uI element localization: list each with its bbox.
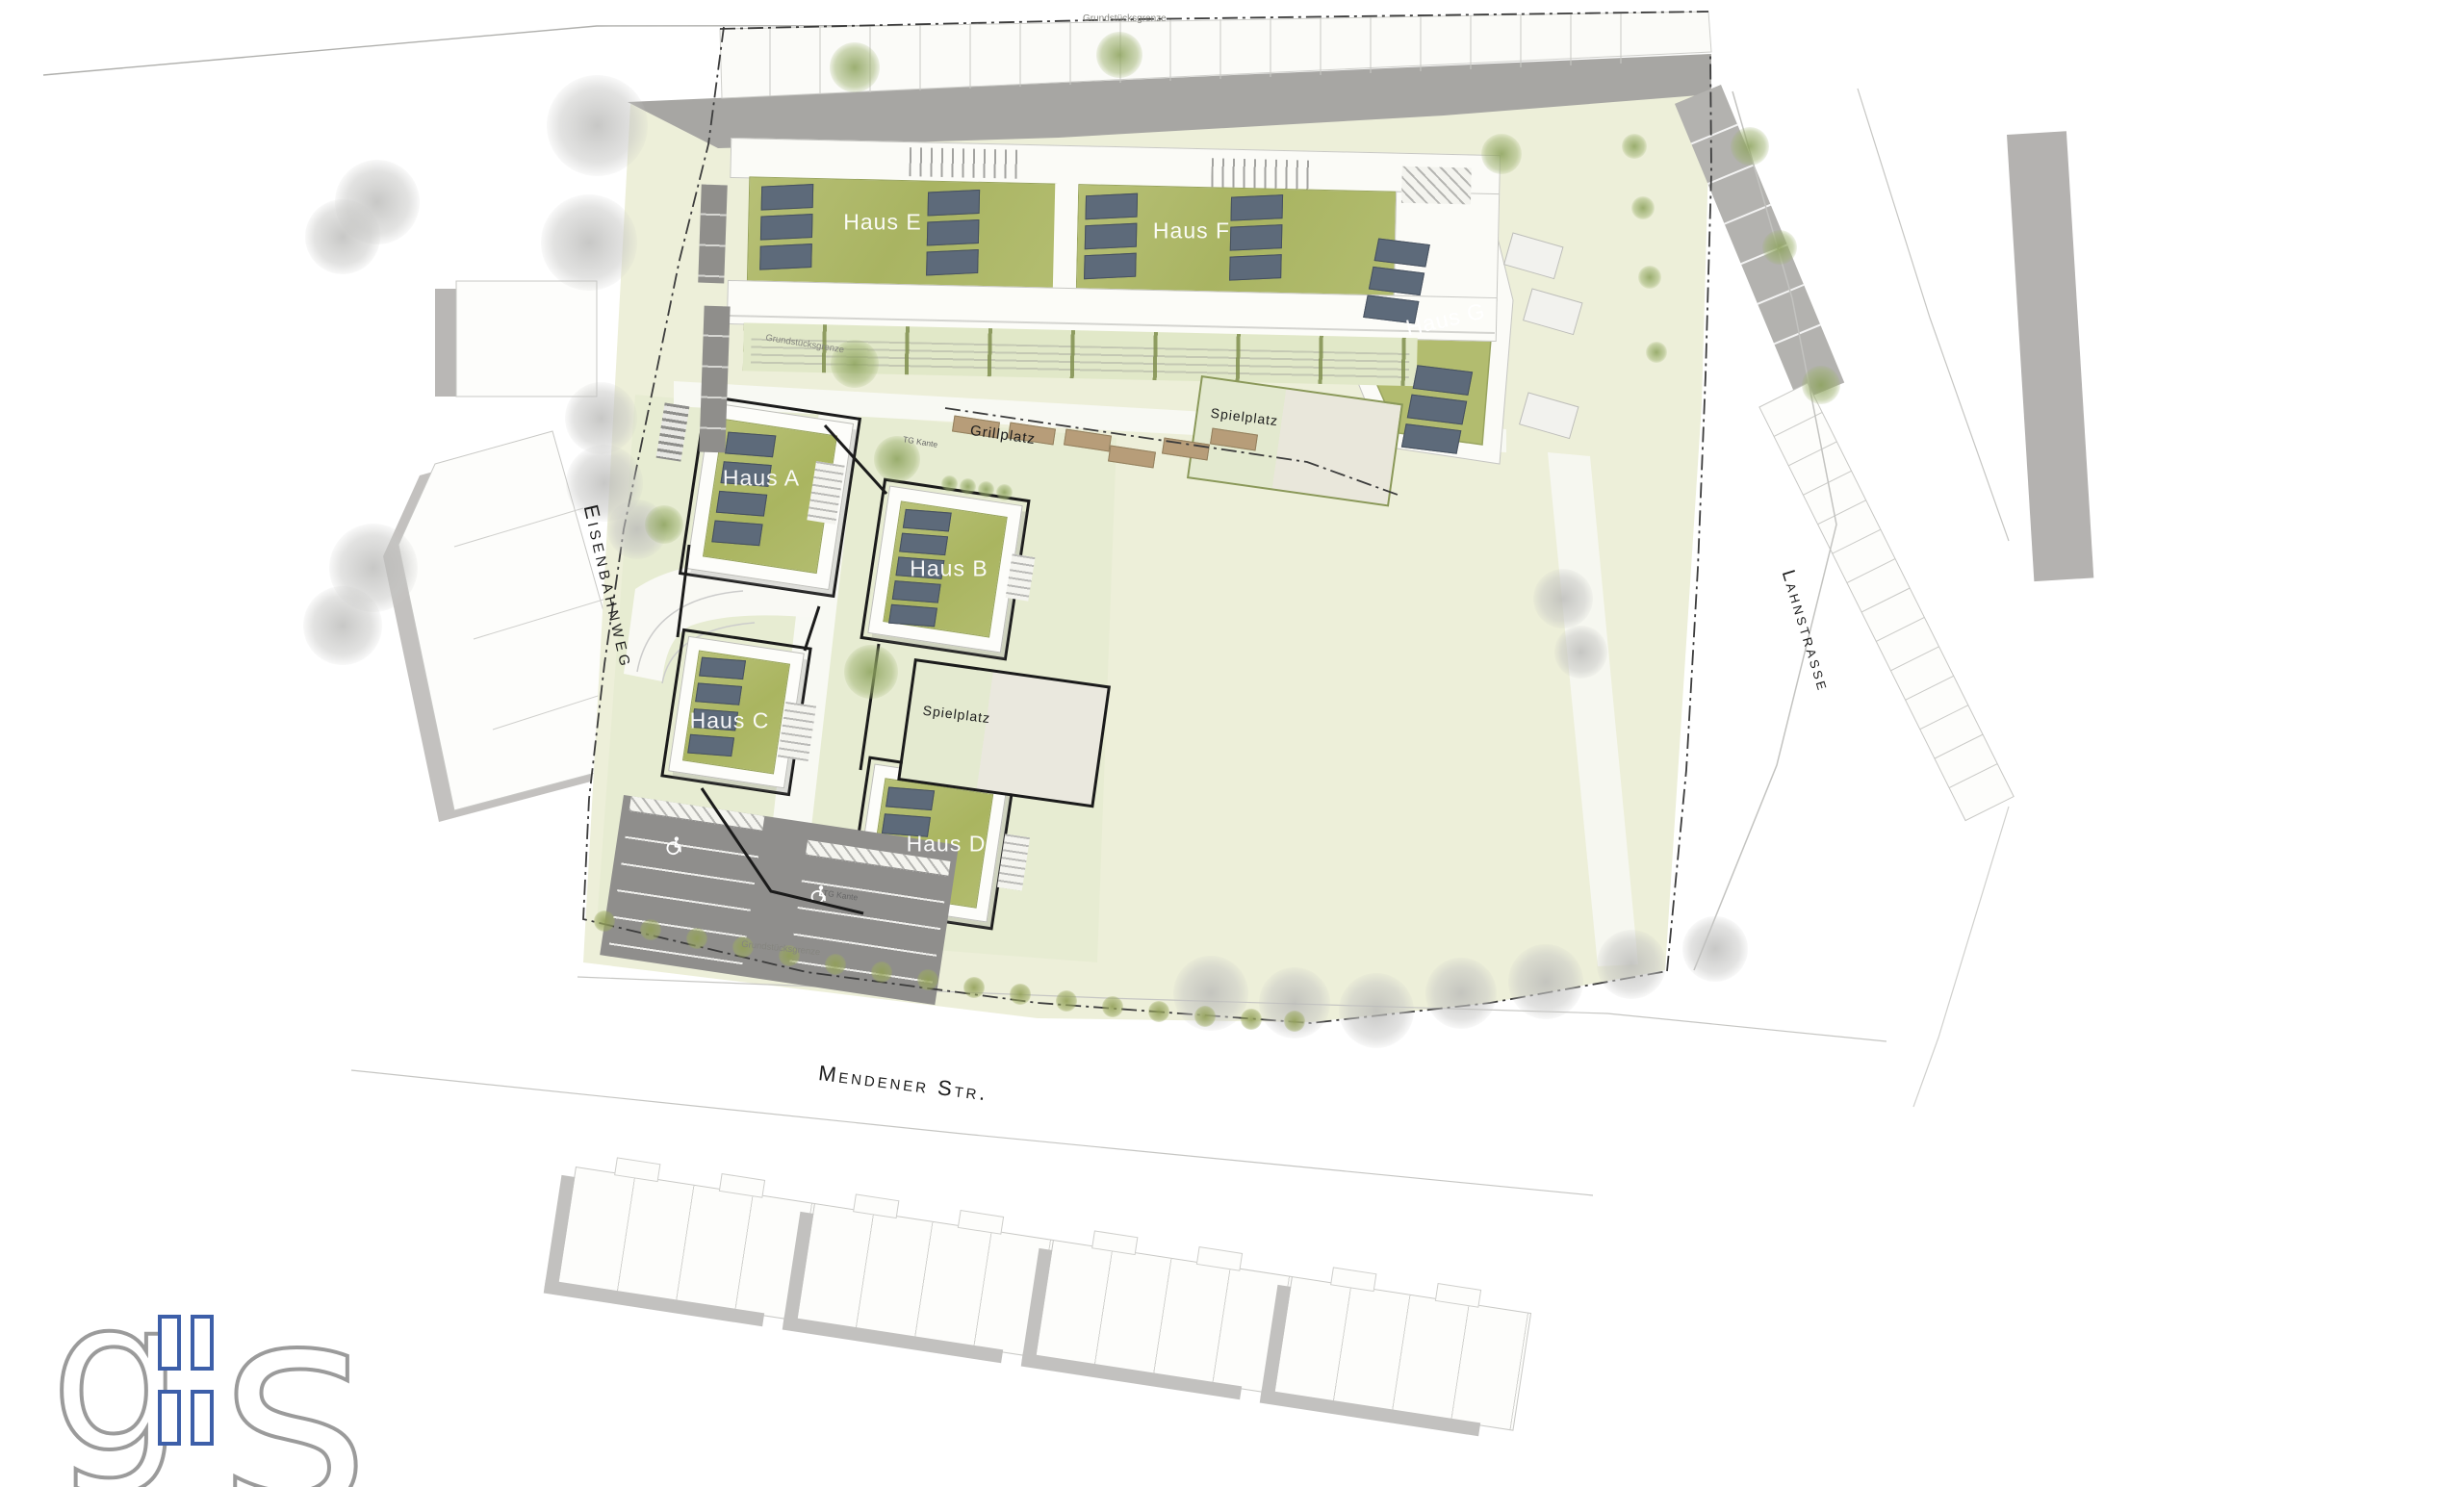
hedge-icon <box>686 928 707 949</box>
property-boundary-north <box>720 12 1708 29</box>
tree-icon <box>1802 366 1840 404</box>
hedge-icon <box>1194 1006 1216 1027</box>
tree-icon <box>305 199 380 274</box>
hedge-icon <box>1010 984 1031 1005</box>
haus-b-label: Haus B <box>910 556 988 582</box>
tree-icon <box>1508 944 1583 1019</box>
hedge-icon <box>825 954 846 975</box>
tg-edge-line <box>678 545 689 637</box>
logo-block <box>158 1390 181 1446</box>
tree-icon <box>1554 626 1607 679</box>
tree-icon <box>844 645 898 699</box>
tree-icon <box>1631 196 1655 219</box>
tree-icon <box>541 194 637 291</box>
logo-block <box>191 1315 214 1371</box>
hedge-icon <box>640 919 661 940</box>
tree-icon <box>941 475 958 492</box>
tree-icon <box>1096 32 1142 78</box>
tree-icon <box>830 42 880 92</box>
boundary-label-north: Grundstücksgrenze <box>1083 13 1167 24</box>
hedge-icon <box>1148 1001 1169 1022</box>
haus-e-label: Haus E <box>843 210 921 236</box>
tree-icon <box>303 586 382 665</box>
tree-icon <box>1762 230 1797 265</box>
tree-icon <box>1646 342 1667 363</box>
tree-icon <box>1682 916 1748 982</box>
haus-a-label: Haus A <box>723 466 800 492</box>
tree-icon <box>1622 134 1647 159</box>
hedge-icon <box>963 977 985 998</box>
gs-logo: g s <box>38 1280 327 1487</box>
tree-icon <box>547 75 648 176</box>
tree-icon <box>1481 134 1522 174</box>
property-boundary-west-south <box>583 27 1667 1023</box>
tree-icon <box>1731 127 1769 166</box>
hedge-icon <box>1241 1009 1262 1030</box>
tree-icon <box>565 382 637 454</box>
hedge-icon <box>1284 1011 1305 1032</box>
tree-icon <box>1597 930 1666 999</box>
tree-icon <box>1638 266 1661 289</box>
tg-edge-line <box>805 606 819 651</box>
tree-icon <box>978 481 994 498</box>
tree-icon <box>1339 973 1414 1048</box>
hedge-icon <box>871 961 892 983</box>
logo-letter-s: s <box>219 1242 370 1487</box>
site-plan: Haus E Haus F Haus G Haus A Haus B Haus … <box>0 0 2464 1487</box>
logo-block <box>158 1315 181 1371</box>
tree-icon <box>960 478 976 495</box>
boundary-grill-area <box>945 408 1398 495</box>
tree-icon <box>996 484 1013 500</box>
hedge-icon <box>1056 990 1077 1012</box>
hedge-icon <box>917 969 938 990</box>
haus-c-label: Haus C <box>690 708 770 734</box>
property-boundary-east <box>1667 53 1711 971</box>
tree-icon <box>1533 569 1593 628</box>
hedge-icon <box>1102 996 1123 1017</box>
hedge-icon <box>594 910 615 932</box>
haus-f-label: Haus F <box>1153 218 1230 244</box>
haus-d-label: Haus D <box>907 832 987 858</box>
logo-block <box>191 1390 214 1446</box>
tree-icon <box>645 505 683 544</box>
tree-icon <box>1425 958 1497 1029</box>
